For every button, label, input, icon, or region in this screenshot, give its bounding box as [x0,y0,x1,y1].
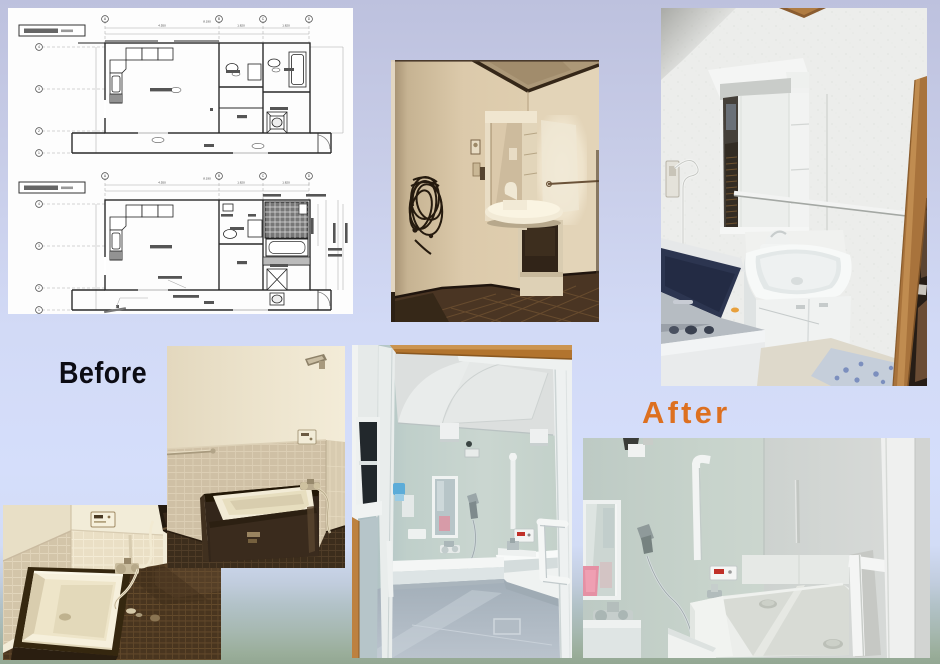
svg-text:4.550: 4.550 [158,23,166,27]
svg-text:1: 1 [38,308,40,312]
svg-text:8.190: 8.190 [203,20,211,24]
svg-text:3: 3 [38,244,40,248]
svg-text:3: 3 [38,87,40,91]
svg-text:1: 1 [38,151,40,155]
svg-text:4: 4 [38,45,40,49]
svg-text:4: 4 [38,202,40,206]
svg-text:1.820: 1.820 [237,23,245,27]
svg-text:1.820: 1.820 [282,23,290,27]
svg-text:8.190: 8.190 [203,177,211,181]
svg-text:B: B [218,174,221,178]
svg-text:A: A [104,17,107,21]
svg-text:B: B [218,17,221,21]
svg-text:D: D [308,174,311,178]
svg-text:D: D [308,17,311,21]
svg-text:A: A [104,174,107,178]
svg-text:1.820: 1.820 [282,180,290,184]
svg-text:1.820: 1.820 [237,180,245,184]
svg-text:C: C [262,17,265,21]
svg-text:2: 2 [38,129,40,133]
svg-text:C: C [262,174,265,178]
svg-text:4.550: 4.550 [158,180,166,184]
svg-text:2: 2 [38,286,40,290]
